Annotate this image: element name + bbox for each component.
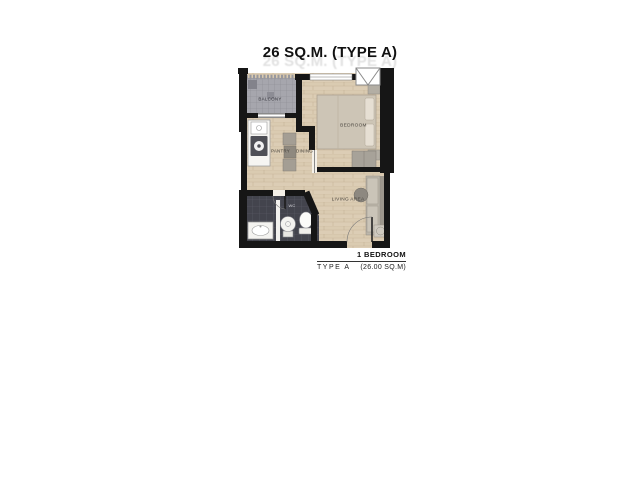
page-title: 26 SQ.M. (TYPE A) (240, 44, 420, 61)
legend-divider (317, 261, 406, 262)
wc-label: WC (288, 203, 295, 208)
floor-plan: BALCONY PANTRY DINING BEDROOM LIVING ARE… (238, 66, 394, 250)
living-area-label: LIVING AREA (332, 197, 365, 203)
bedroom-window-icon (310, 74, 352, 80)
basin-icon (281, 217, 296, 238)
dining-label: DINING (296, 149, 313, 154)
balcony-label: BALCONY (258, 97, 281, 102)
legend-area-label: (26.00 SQ.M) (360, 264, 406, 271)
legend-unit-type: 1 BEDROOM (305, 250, 406, 259)
vanity-counter-icon (248, 222, 273, 239)
bed-icon (317, 95, 376, 149)
legend-type-label: TYPE A (317, 264, 351, 271)
bedroom-label: BEDROOM (340, 123, 367, 129)
kitchen-counter-icon (248, 120, 270, 166)
legend: 1 BEDROOM TYPE A (26.00 SQ.M) (305, 250, 406, 271)
ac-unit-icon (356, 68, 380, 85)
toilet-icon (299, 212, 313, 234)
pantry-label: PANTRY (271, 149, 290, 154)
wardrobe-icon (352, 151, 376, 168)
balcony-sliding-door-icon (258, 114, 285, 118)
balcony-floor (246, 77, 296, 114)
